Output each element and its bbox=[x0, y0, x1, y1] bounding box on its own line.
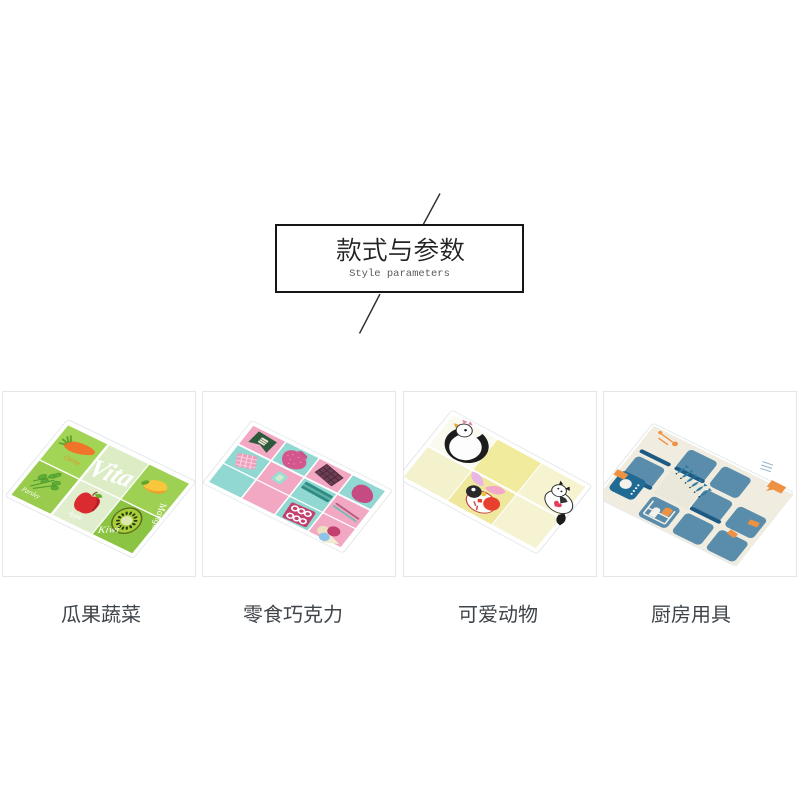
svg-text:Kiwi: Kiwi bbox=[96, 525, 120, 536]
